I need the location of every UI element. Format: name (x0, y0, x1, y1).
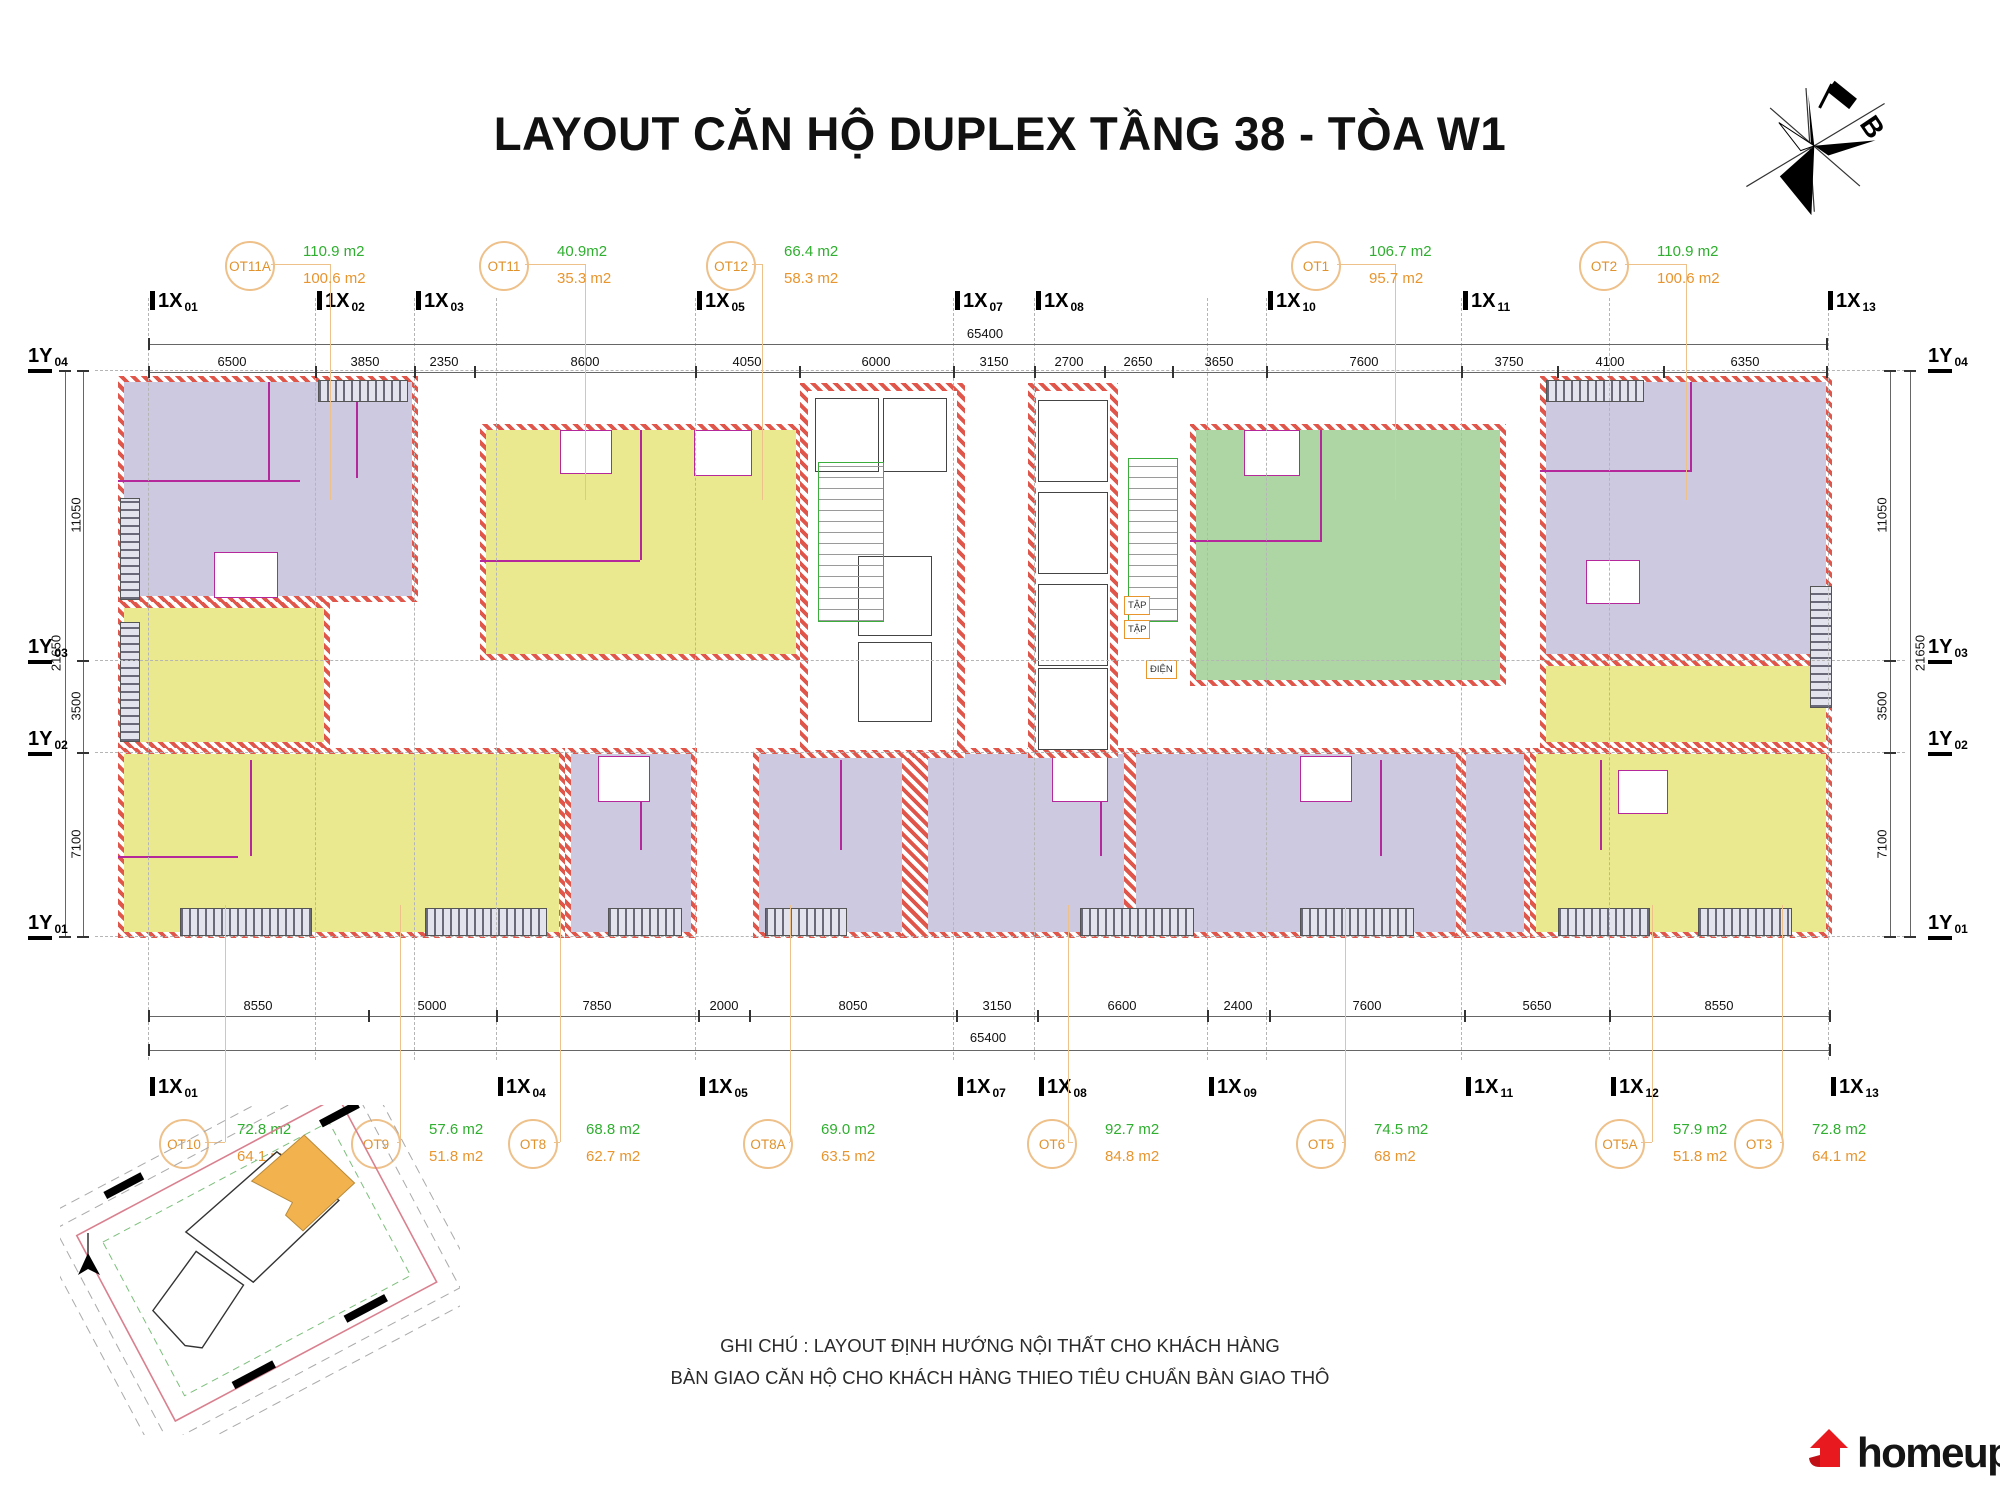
drawing-title: LAYOUT CĂN HỘ DUPLEX TẦNG 38 - TÒA W1 (30, 106, 1970, 161)
axis-prefix: 1X (1276, 290, 1300, 312)
partition-wall-15 (118, 856, 238, 858)
elevator-6 (1038, 584, 1108, 666)
dim-bot-6600-6: 6600 (1108, 998, 1137, 1013)
axis-tick-bar (150, 291, 155, 310)
dim-top-tick-0 (148, 366, 150, 378)
axis-number: 04 (532, 1086, 545, 1100)
dim-left-tick-3 (77, 936, 89, 938)
unit-ot2-area-bottom: 100.6 m2 (1657, 270, 1720, 287)
dim-right-tick-2 (1884, 752, 1896, 754)
bt1 (1829, 1044, 1831, 1056)
axis-prefix: 1Y (1928, 345, 1952, 373)
axis-top-1X01: 1X01 (150, 290, 198, 314)
elevator-0 (815, 398, 879, 472)
dim-top-tick-2 (414, 366, 416, 378)
balcony-2 (608, 908, 682, 936)
unit-ot3-area-top: 72.8 m2 (1812, 1121, 1866, 1138)
dim-left-tick-2 (77, 752, 89, 754)
bathroom-cell-6 (1052, 756, 1108, 802)
dim-top-4050-4: 4050 (733, 354, 762, 369)
dim-top-tick-13 (1663, 366, 1665, 378)
rt1 (1904, 936, 1916, 938)
axis-number: 02 (1954, 738, 1967, 752)
tt0 (148, 338, 150, 350)
axis-number: 03 (450, 300, 463, 314)
grid-line-x-5 (953, 298, 954, 1060)
bathroom-cell-0 (214, 552, 278, 598)
partition-wall-14 (250, 760, 252, 856)
grid-line-x-1 (315, 298, 316, 1060)
partition-wall-6 (1190, 540, 1320, 542)
grid-line-y-3 (95, 936, 1905, 937)
note-line-2: BÀN GIAO CĂN HỘ CHO KHÁCH HÀNG THIEO TIÊ… (0, 1362, 2000, 1394)
dim-top-tick-14 (1826, 366, 1828, 378)
homeup-house-icon (1806, 1426, 1852, 1472)
floorplan-sheet: LAYOUT CĂN HỘ DUPLEX TẦNG 38 - TÒA W1 B … (0, 0, 2000, 1500)
unit-ot5a-circle: OT5A (1595, 1119, 1645, 1169)
unit-ot11a-area-top: 110.9 m2 (303, 243, 364, 260)
unit-ot5a-area-bottom: 51.8 m2 (1673, 1148, 1727, 1165)
dim-top-6350-13: 6350 (1731, 354, 1760, 369)
block-ot1-floor (1196, 430, 1500, 680)
axis-number: 03 (1954, 646, 1967, 660)
unit-ot12-circle: OT12 (706, 241, 756, 291)
axis-prefix: 1X (1836, 290, 1860, 312)
block-ot10-ot9-floor (124, 754, 559, 932)
unit-ot8a-area-bottom: 63.5 m2 (821, 1148, 875, 1165)
axis-tick-bar (416, 291, 421, 310)
axis-tick-bar (1831, 1077, 1836, 1096)
unit-ot1-leader-v (1395, 264, 1396, 500)
unit-ot12-area-bottom: 58.3 m2 (784, 270, 838, 287)
unit-ot2-area-top: 110.9 m2 (1657, 243, 1718, 260)
dim-right-3500: 3500 (1875, 692, 1890, 721)
axis-prefix: 1X (158, 1076, 182, 1098)
dim-top-tick-12 (1557, 366, 1559, 378)
axis-prefix: 1Y (28, 636, 52, 664)
dim-top-6500-0: 6500 (218, 354, 247, 369)
core-label-0: TẬP (1124, 596, 1150, 615)
axis-left-1Y02: 1Y02 (28, 728, 68, 756)
unit-ot8-area-bottom: 62.7 m2 (586, 1148, 640, 1165)
axis-tick-bar (1466, 1077, 1471, 1096)
axis-top-1X05: 1X05 (697, 290, 745, 314)
unit-ot12-area-top: 66.4 m2 (784, 243, 838, 260)
axis-top-1X13: 1X13 (1828, 290, 1876, 314)
axis-tick-bar (1828, 291, 1833, 310)
partition-wall-13 (1600, 760, 1602, 850)
dim-right-7100: 7100 (1875, 830, 1890, 859)
axis-prefix: 1X (1839, 1076, 1863, 1098)
dim-top-tick-10 (1266, 366, 1268, 378)
grid-line-x-8 (1266, 298, 1267, 1060)
axis-top-1X08: 1X08 (1036, 290, 1084, 314)
axis-number: 02 (351, 300, 364, 314)
axis-prefix: 1Y (1928, 728, 1952, 756)
unit-ot1-leader-h (1337, 264, 1395, 265)
dim-top-2700-7: 2700 (1055, 354, 1084, 369)
axis-number: 07 (992, 1086, 1005, 1100)
north-letter: B (1854, 110, 1891, 144)
dim-top-tick-7 (1034, 366, 1036, 378)
unit-ot11a-area-bottom: 100.6 m2 (303, 270, 366, 287)
dim-bot-8550-0: 8550 (244, 998, 273, 1013)
grid-line-x-9 (1461, 298, 1462, 1060)
axis-prefix: 1Y (28, 912, 52, 940)
partition-wall-8 (1540, 470, 1690, 472)
dim-top-tick-5 (799, 366, 801, 378)
dim-bot-tick-3 (698, 1010, 700, 1022)
block-mid-right (1540, 660, 1832, 748)
grid-line-x-0 (148, 298, 149, 1060)
bathroom-cell-8 (1618, 770, 1668, 814)
axis-number: 08 (1070, 300, 1083, 314)
unit-ot3-leader-v (1782, 905, 1783, 1142)
elevator-1 (883, 398, 947, 472)
axis-tick-bar (1611, 1077, 1616, 1096)
dim-top-tick-3 (474, 366, 476, 378)
dim-top-6000-5: 6000 (862, 354, 891, 369)
axis-right-1Y03: 1Y03 (1928, 636, 1968, 664)
axis-number: 01 (184, 300, 197, 314)
balcony-3 (765, 908, 847, 936)
unit-ot5-area-bottom: 68 m2 (1374, 1148, 1416, 1165)
axis-tick-bar (700, 1077, 705, 1096)
dim-bot-tick-1 (368, 1010, 370, 1022)
dim-right-seg-line (1890, 370, 1891, 936)
dim-bot-tick-11 (1829, 1010, 1831, 1022)
axis-number: 08 (1073, 1086, 1086, 1100)
unit-ot5-area-top: 74.5 m2 (1374, 1121, 1428, 1138)
axis-tick-bar (955, 291, 960, 310)
partition-wall-5 (1320, 430, 1322, 542)
dim-bot-tick-10 (1609, 1010, 1611, 1022)
bt0 (148, 1044, 150, 1056)
axis-prefix: 1X (1474, 1076, 1498, 1098)
stair-0 (818, 462, 884, 622)
axis-bottom-1X05: 1X05 (700, 1076, 748, 1100)
axis-tick-bar (1036, 291, 1041, 310)
dim-bot-tick-8 (1269, 1010, 1271, 1022)
axis-top-1X10: 1X10 (1268, 290, 1316, 314)
dim-top-3150-6: 3150 (980, 354, 1009, 369)
balcony-5 (1300, 908, 1414, 936)
axis-tick-bar (958, 1077, 963, 1096)
dim-top-2350-2: 2350 (430, 354, 459, 369)
axis-tick-bar (150, 1077, 155, 1096)
unit-ot6-area-top: 92.7 m2 (1105, 1121, 1159, 1138)
dim-bot-2400-7: 2400 (1224, 998, 1253, 1013)
dim-right-tick-0 (1884, 370, 1896, 372)
unit-ot5-leader-h (1342, 1142, 1345, 1143)
elevator-5 (1038, 492, 1108, 574)
dim-left-3500: 3500 (69, 692, 84, 721)
unit-ot8-leader-v (560, 905, 561, 1142)
unit-ot12-leader-v (762, 264, 763, 500)
unit-ot11-leader-v (585, 264, 586, 500)
dim-bot-8550-10: 8550 (1705, 998, 1734, 1013)
axis-number: 05 (731, 300, 744, 314)
notes-block: GHI CHÚ : LAYOUT ĐỊNH HƯỚNG NỘI THẤT CHO… (0, 1330, 2000, 1395)
axis-top-1X07: 1X07 (955, 290, 1003, 314)
dim-top-seg-line (148, 372, 1826, 373)
block-ot1 (1190, 424, 1506, 686)
axis-bottom-1X11: 1X11 (1466, 1076, 1513, 1100)
axis-tick-bar (1039, 1077, 1044, 1096)
dim-bot-tick-4 (749, 1010, 751, 1022)
axis-tick-bar (498, 1077, 503, 1096)
dim-top-total: 65400 (967, 326, 1003, 341)
dim-top-3750-11: 3750 (1495, 354, 1524, 369)
grid-line-x-6 (1034, 298, 1035, 1060)
axis-number: 02 (54, 738, 67, 752)
unit-ot1-area-bottom: 95.7 m2 (1369, 270, 1423, 287)
balcony-top-1 (1546, 380, 1644, 402)
unit-ot3-circle: OT3 (1734, 1119, 1784, 1169)
partition-wall-7 (1690, 382, 1692, 472)
unit-ot5a-leader-h (1641, 1142, 1652, 1143)
axis-number: 01 (1954, 922, 1967, 936)
axis-prefix: 1X (963, 290, 987, 312)
axis-bottom-1X04: 1X04 (498, 1076, 546, 1100)
dim-right-tick-1 (1884, 660, 1896, 662)
tt1 (1826, 338, 1828, 350)
axis-tick-bar (1463, 291, 1468, 310)
axis-prefix: 1X (506, 1076, 530, 1098)
unit-ot5a-leader-v (1652, 905, 1653, 1142)
axis-tick-bar (1209, 1077, 1214, 1096)
axis-left-1Y04: 1Y04 (28, 345, 68, 373)
axis-prefix: 1X (708, 1076, 732, 1098)
bathroom-cell-1 (694, 430, 752, 476)
unit-ot2-circle: OT2 (1579, 241, 1629, 291)
grid-line-x-7 (1207, 298, 1208, 1060)
rt0 (1904, 370, 1916, 372)
grid-line-y-2 (95, 752, 1905, 753)
axis-number: 01 (184, 1086, 197, 1100)
unit-ot11a-leader-h (271, 264, 330, 265)
balcony-side-1 (120, 622, 140, 742)
axis-prefix: 1X (424, 290, 448, 312)
axis-right-1Y04: 1Y04 (1928, 345, 1968, 373)
dim-top-4100-12: 4100 (1596, 354, 1625, 369)
balcony-side-0 (120, 498, 140, 600)
dim-bot-7850-2: 7850 (583, 998, 612, 1013)
axis-bottom-1X08: 1X08 (1039, 1076, 1087, 1100)
dim-top-tick-1 (315, 366, 317, 378)
dim-left-7100: 7100 (69, 830, 84, 859)
dim-bot-total: 65400 (970, 1030, 1006, 1045)
axis-tick-bar (317, 291, 322, 310)
dim-bot-3150-5: 3150 (983, 998, 1012, 1013)
elevator-3 (858, 642, 932, 722)
axis-top-1X03: 1X03 (416, 290, 464, 314)
unit-ot6-leader-h (1068, 1142, 1073, 1143)
unit-ot2-leader-v (1686, 264, 1687, 500)
unit-ot11-area-bottom: 35.3 m2 (557, 270, 611, 287)
block-ot8a-ot6-ot5-floor (759, 754, 1524, 932)
unit-ot1-area-top: 106.7 m2 (1369, 243, 1432, 260)
dim-top-tick-6 (953, 366, 955, 378)
axis-prefix: 1X (1217, 1076, 1241, 1098)
elevator-4 (1038, 400, 1108, 482)
dim-top-tick-4 (695, 366, 697, 378)
dim-bot-2000-3: 2000 (710, 998, 739, 1013)
dim-top-2650-8: 2650 (1124, 354, 1153, 369)
bathroom-cell-7 (1300, 756, 1352, 802)
axis-prefix: 1X (1619, 1076, 1643, 1098)
homeup-wordmark: homeup (1857, 1434, 2000, 1472)
axis-number: 13 (1862, 300, 1875, 314)
dim-top-total-line (148, 344, 1826, 345)
dim-bot-tick-7 (1207, 1010, 1209, 1022)
partition-wall-0 (268, 382, 270, 482)
bathroom-cell-4 (1586, 560, 1640, 604)
dim-bot-tick-0 (148, 1010, 150, 1022)
unit-ot6-circle: OT6 (1027, 1119, 1077, 1169)
dim-bot-tick-6 (1037, 1010, 1039, 1022)
grid-line-y-0 (95, 370, 1905, 371)
dim-left-tick-0 (77, 370, 89, 372)
partition-wall-1 (118, 480, 300, 482)
axis-prefix: 1Y (28, 728, 52, 756)
axis-tick-bar (697, 291, 702, 310)
dim-right-total: 21650 (1913, 635, 1928, 671)
axis-bottom-1X01: 1X01 (150, 1076, 198, 1100)
axis-bottom-1X09: 1X09 (1209, 1076, 1257, 1100)
axis-number: 05 (734, 1086, 747, 1100)
balcony-0 (180, 908, 312, 936)
balcony-7 (1698, 908, 1792, 936)
core-label-2: ĐIỆN (1146, 660, 1177, 679)
axis-prefix: 1X (1044, 290, 1068, 312)
axis-top-1X11: 1X11 (1463, 290, 1510, 314)
grid-line-x-10 (1609, 298, 1610, 1060)
partition-wall-10 (840, 760, 842, 850)
grid-line-x-2 (414, 298, 415, 1060)
dim-right-total-line (1910, 370, 1911, 936)
axis-prefix: 1X (966, 1076, 990, 1098)
unit-ot11-area-top: 40.9m2 (557, 243, 607, 260)
axis-prefix: 1X (158, 290, 182, 312)
core-label-1: TẬP (1124, 620, 1150, 639)
axis-prefix: 1X (1471, 290, 1495, 312)
unit-ot8-leader-h (554, 1142, 560, 1143)
axis-number: 01 (54, 922, 67, 936)
balcony-top-0 (318, 380, 408, 402)
axis-tick-bar (1268, 291, 1273, 310)
dim-left-tick-1 (77, 660, 89, 662)
note-line-1: GHI CHÚ : LAYOUT ĐỊNH HƯỚNG NỘI THẤT CHO… (0, 1330, 2000, 1362)
dim-top-3850-1: 3850 (351, 354, 380, 369)
balcony-6 (1558, 908, 1650, 936)
unit-ot11a-circle: OT11A (225, 241, 275, 291)
unit-ot12-leader-h (752, 264, 762, 265)
axis-prefix: 1X (325, 290, 349, 312)
axis-number: 07 (989, 300, 1002, 314)
dim-top-tick-9 (1172, 366, 1174, 378)
partition-wall-4 (480, 560, 640, 562)
unit-ot3-area-bottom: 64.1 m2 (1812, 1148, 1866, 1165)
axis-left-1Y01: 1Y01 (28, 912, 68, 940)
axis-top-1X02: 1X02 (317, 290, 365, 314)
balcony-1 (425, 908, 547, 936)
unit-ot3-leader-h (1780, 1142, 1782, 1143)
axis-prefix: 1Y (28, 345, 52, 373)
homeup-logo: homeup (1806, 1426, 2000, 1472)
unit-ot6-area-bottom: 84.8 m2 (1105, 1148, 1159, 1165)
dim-right-11050: 11050 (1875, 497, 1890, 532)
axis-right-1Y01: 1Y01 (1928, 912, 1968, 940)
axis-number: 10 (1302, 300, 1315, 314)
unit-ot1-circle: OT1 (1291, 241, 1341, 291)
balcony-4 (1080, 908, 1194, 936)
grid-line-x-3 (496, 298, 497, 1060)
axis-prefix: 1Y (1928, 912, 1952, 940)
unit-ot11a-leader-v (330, 264, 331, 500)
partition-wall-12 (1380, 760, 1382, 856)
axis-prefix: 1Y (1928, 636, 1952, 664)
grid-line-x-4 (695, 298, 696, 1060)
unit-ot2-leader-h (1625, 264, 1686, 265)
axis-number: 11 (1500, 1086, 1513, 1100)
unit-ot8a-circle: OT8A (743, 1119, 793, 1169)
unit-ot5-circle: OT5 (1296, 1119, 1346, 1169)
axis-number: 09 (1243, 1086, 1256, 1100)
axis-prefix: 1X (705, 290, 729, 312)
unit-ot8a-area-top: 69.0 m2 (821, 1121, 875, 1138)
block-mid-left (118, 602, 330, 748)
elevator-7 (1038, 668, 1108, 750)
grid-line-x-11 (1828, 298, 1829, 1060)
unit-ot11-leader-h (525, 264, 585, 265)
unit-ot8a-leader-v (790, 905, 791, 1142)
axis-bottom-1X07: 1X07 (958, 1076, 1006, 1100)
unit-ot5a-area-top: 57.9 m2 (1673, 1121, 1727, 1138)
dim-top-7600-10: 7600 (1350, 354, 1379, 369)
unit-ot11-circle: OT11 (479, 241, 529, 291)
unit-ot6-leader-v (1068, 905, 1069, 1142)
dim-bot-tick-2 (496, 1010, 498, 1022)
unit-ot8-circle: OT8 (508, 1119, 558, 1169)
dim-top-tick-8 (1104, 366, 1106, 378)
axis-number: 03 (54, 646, 67, 660)
axis-left-1Y03: 1Y03 (28, 636, 68, 664)
axis-number: 11 (1497, 300, 1510, 314)
dim-bot-7600-8: 7600 (1353, 998, 1382, 1013)
unit-ot5-leader-v (1345, 905, 1346, 1142)
dim-top-tick-11 (1461, 366, 1463, 378)
party-wall-0 (902, 748, 928, 938)
dim-bot-5650-9: 5650 (1523, 998, 1552, 1013)
dim-left-11050: 11050 (69, 497, 84, 532)
partition-wall-3 (640, 430, 642, 560)
block-mid-left-floor (124, 608, 324, 742)
block-mid-right-floor (1546, 666, 1826, 742)
north-arrow-icon: B (1730, 62, 1900, 232)
axis-number: 13 (1865, 1086, 1878, 1100)
bathroom-cell-3 (1244, 430, 1300, 476)
unit-ot8-area-top: 68.8 m2 (586, 1121, 640, 1138)
dim-right-tick-3 (1884, 936, 1896, 938)
axis-bottom-1X13: 1X13 (1831, 1076, 1879, 1100)
bathroom-cell-5 (598, 756, 650, 802)
unit-ot8a-leader-h (789, 1142, 790, 1143)
grid-line-y-1 (95, 660, 1905, 661)
axis-right-1Y02: 1Y02 (1928, 728, 1968, 756)
dim-bot-5000-1: 5000 (418, 998, 447, 1013)
dim-bot-tick-9 (1464, 1010, 1466, 1022)
